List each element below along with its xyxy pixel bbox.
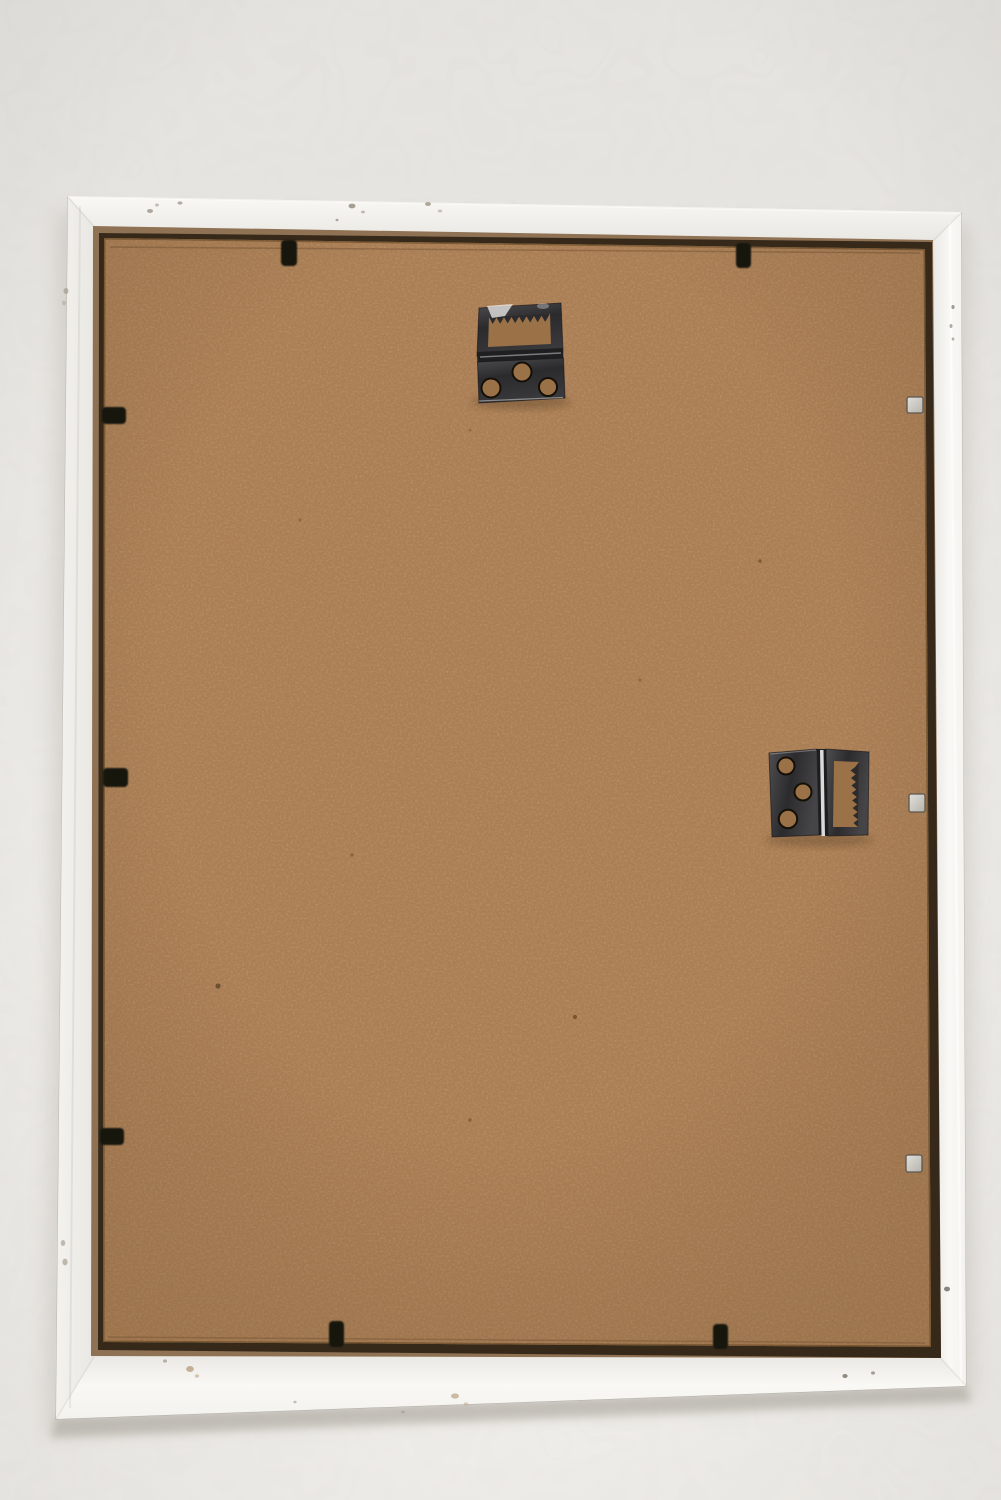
retaining-tab-left-upper [102,407,126,424]
metal-clip-right-middle [909,794,925,812]
retaining-tab-bottom-left [329,1321,344,1347]
hanger-top-screw-hole-center [513,363,532,382]
retaining-tab-left-lower [100,1128,124,1145]
retaining-tab-bottom-right [713,1324,728,1349]
photo-stage: Back view of an empty white wooden pictu… [0,0,1001,1500]
hanger-top-specular-small [537,303,549,309]
hanger-right-screw-hole-middle [795,784,812,801]
metal-clip-right-lower [906,1155,922,1172]
metal-clip-right-upper [907,397,923,413]
retaining-tab-top-left [281,240,297,266]
frame-back-photo: Back view of an empty white wooden pictu… [0,0,1001,1500]
sawtooth-hanger-right [765,749,873,847]
retaining-tab-top-right [736,243,751,268]
sawtooth-hanger-top [471,303,571,409]
hanger-top-screw-hole-left [482,379,501,398]
hanger-top-screw-hole-right [539,378,557,396]
retaining-tab-left-middle [103,768,128,787]
hanger-right-screw-hole-bottom [779,810,797,828]
hanger-right-screw-hole-top [778,758,795,775]
